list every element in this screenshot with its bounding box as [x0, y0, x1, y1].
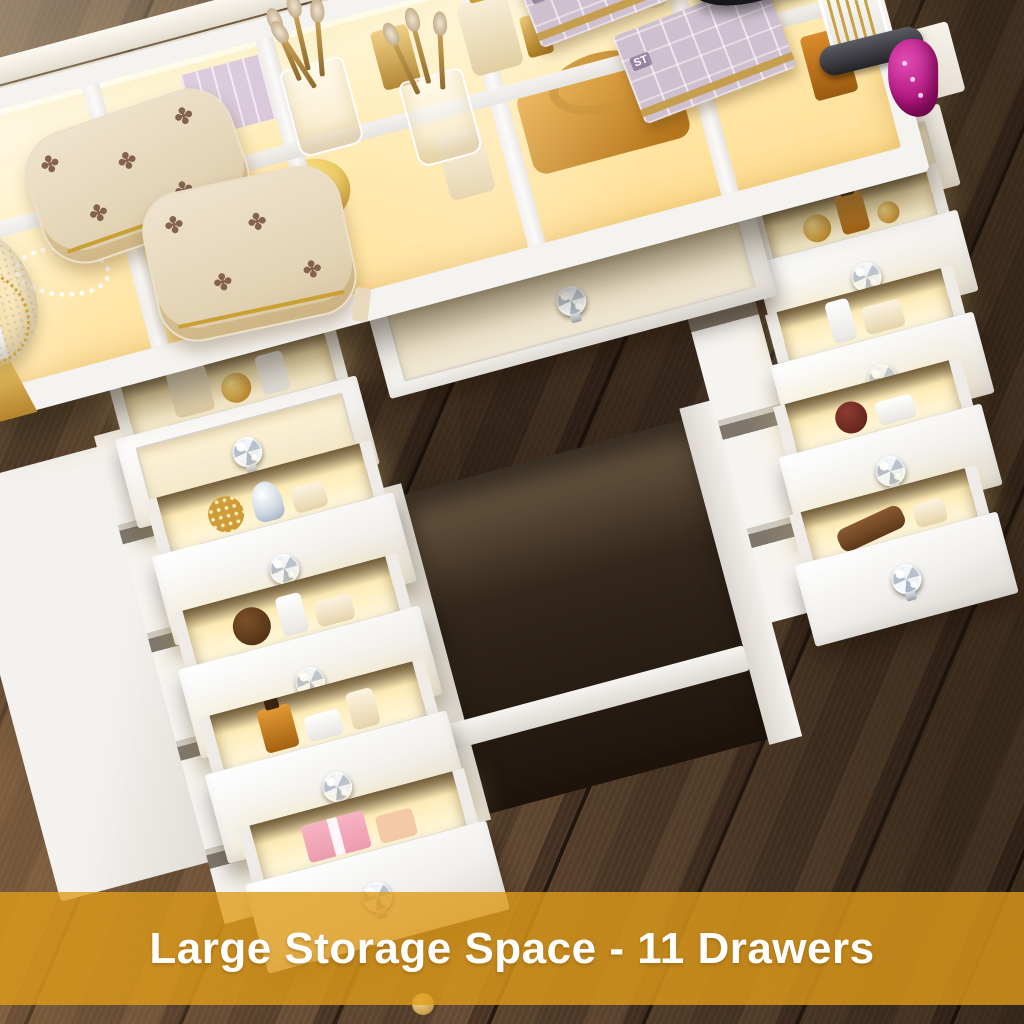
- monogram-icon: ✤: [172, 103, 197, 130]
- monogram-icon: ✤: [87, 200, 112, 227]
- drawer-item-brown-jar: [229, 603, 276, 650]
- gold-zipper: [178, 290, 345, 329]
- drawer-item-amber-bottle: [834, 190, 871, 236]
- caption-banner: Large Storage Space - 11 Drawers: [0, 892, 1024, 1005]
- drawer-item-gold-jar: [218, 369, 255, 406]
- product-photo-scene: COCO: [0, 0, 1024, 1024]
- drawer-item-white-tube: [274, 592, 309, 637]
- drawer-item-crystal-ornament: [247, 478, 286, 524]
- drawer-item-white-box: [303, 708, 345, 742]
- monogram-icon: ✤: [246, 210, 269, 235]
- handle-stud: [918, 93, 923, 98]
- drawer-item-gold-honeycomb-jar: [204, 492, 248, 536]
- hair-dryer-magenta-handle: [888, 39, 938, 117]
- crystal-knob: [888, 561, 925, 598]
- monogram-icon: ✤: [115, 148, 140, 175]
- drawer-item-white-bottle: [254, 350, 291, 396]
- monogram-icon: ✤: [301, 257, 324, 282]
- drawer-item-pump-bottle: [824, 298, 858, 345]
- drawer-item-gold-jar: [875, 199, 902, 226]
- lipstick-box-monogram: ST: [529, 0, 553, 5]
- lipstick-box-monogram: ST: [629, 51, 653, 71]
- monogram-icon: ✤: [212, 270, 235, 295]
- drawer-item-cream-box: [290, 480, 330, 514]
- banner-text: Large Storage Space - 11 Drawers: [149, 927, 874, 971]
- drawer-item-amber-perfume: [256, 703, 300, 754]
- crystal-knob: [229, 434, 266, 471]
- crystal-knob: [553, 283, 590, 320]
- drawer-item-cream-box: [313, 593, 356, 628]
- monogram-icon: ✤: [38, 151, 63, 178]
- drawer-item-peach-box: [374, 807, 418, 844]
- drawer-item-maroon-jar: [832, 398, 871, 437]
- drawer-item-cream-box: [912, 497, 949, 528]
- leather-tag: [352, 287, 371, 322]
- drawer-item-gold-jar: [800, 211, 834, 245]
- monogram-icon: ✤: [163, 213, 186, 238]
- handle-stud: [910, 77, 915, 82]
- handle-stud: [902, 61, 907, 66]
- drawer-item-cream-bottle: [344, 687, 381, 731]
